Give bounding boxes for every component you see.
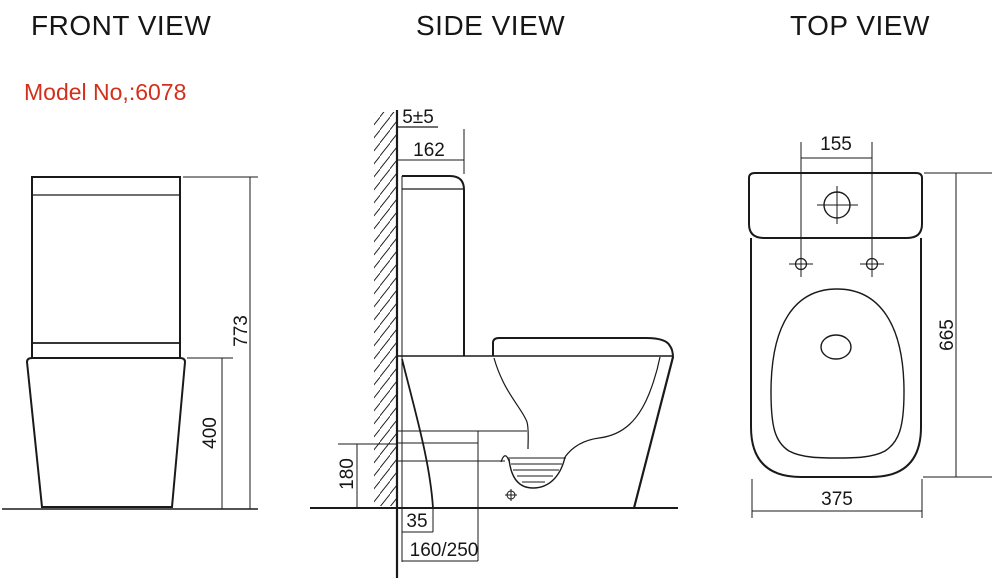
side-dim-180-label: 180 <box>337 458 358 490</box>
front-dim-773-label: 773 <box>231 315 252 347</box>
top-dim-665-label: 665 <box>937 319 958 351</box>
side-dim-162-label: 162 <box>413 140 445 161</box>
side-front-edge <box>634 357 673 508</box>
side-bowl-inner-front-curve <box>494 358 528 449</box>
top-inner-rim-outline <box>771 289 904 458</box>
top-dim-375-label: 375 <box>821 489 853 510</box>
side-seat-profile <box>493 338 673 358</box>
wall-hatching <box>374 112 397 506</box>
side-tank-lid-outline <box>402 176 464 356</box>
side-pedestal-back-curve <box>402 359 433 508</box>
side-dim-roughin-label: 160/250 <box>410 540 479 561</box>
front-base-outline <box>27 358 185 507</box>
side-dim-gap-label: 5±5 <box>402 107 434 128</box>
front-tank-outline <box>32 177 180 358</box>
side-trap-back-curve <box>565 357 660 457</box>
front-dim-400-label: 400 <box>200 417 221 449</box>
technical-drawing-canvas: 400 773 5±5 162 <box>0 0 1000 588</box>
top-drain-outline <box>821 335 851 359</box>
top-dim-155-label: 155 <box>820 134 852 155</box>
side-dim-35-label: 35 <box>406 511 427 532</box>
side-water-level-hatch <box>507 458 566 482</box>
side-view-drawing: 5±5 162 <box>310 107 678 578</box>
top-view-drawing: 155 375 665 <box>749 134 992 518</box>
side-sump-curve <box>509 457 565 488</box>
drawing-sheet: FRONT VIEW SIDE VIEW TOP VIEW Model No,:… <box>0 0 1000 588</box>
flush-button-icon <box>817 186 858 224</box>
front-view-drawing: 400 773 <box>2 177 258 509</box>
drain-symbol-icon <box>505 489 517 501</box>
